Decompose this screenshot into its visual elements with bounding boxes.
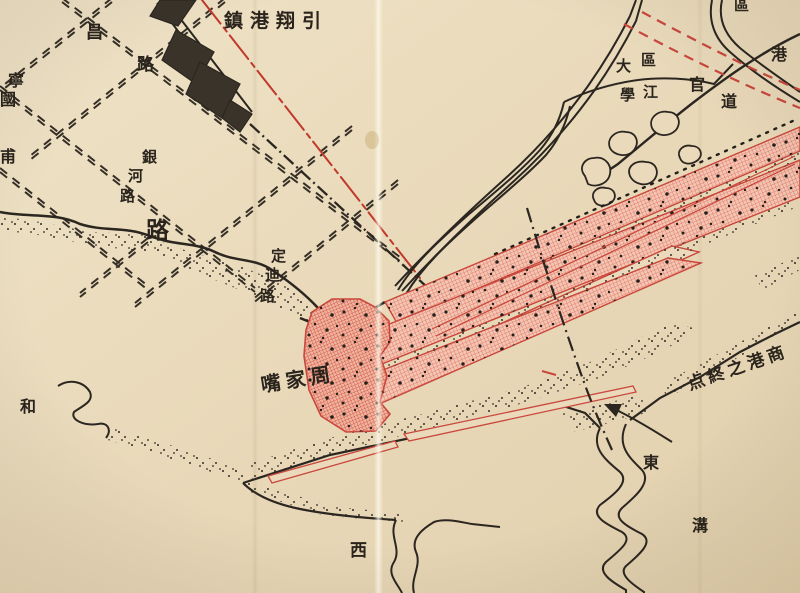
paper-artifacts <box>0 0 800 593</box>
historical-map-svg: 鎮港翔引 昌 路 寧 國 甫 銀 河 路 路 定 迪 路 嘴家周 區 江 大 學… <box>0 0 800 593</box>
map-canvas: 鎮港翔引 昌 路 寧 國 甫 銀 河 路 路 定 迪 路 嘴家周 區 江 大 學… <box>0 0 800 593</box>
vignette <box>0 0 800 593</box>
